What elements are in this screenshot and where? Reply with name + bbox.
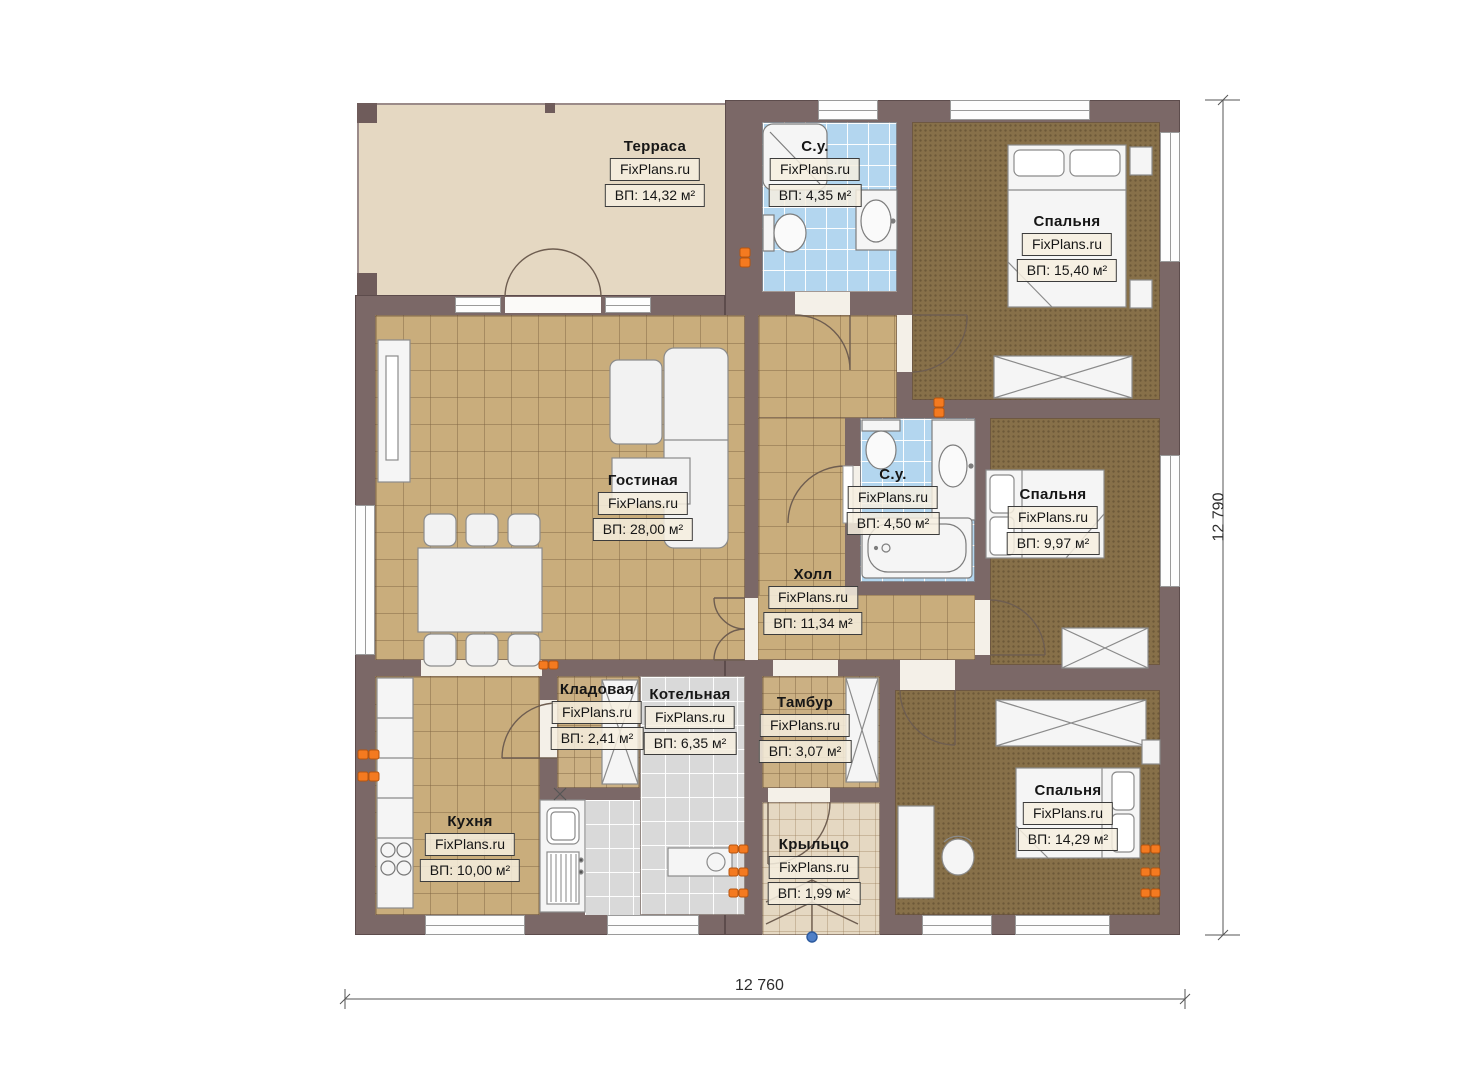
window-boiler	[607, 915, 699, 935]
vestibule-floor	[762, 676, 880, 788]
bathroom-mid-floor	[860, 418, 975, 582]
living-kitchen-opening	[421, 660, 542, 676]
dimension-tick	[1218, 930, 1228, 940]
window-bedroom-top-right	[1160, 132, 1180, 262]
window-kitchen	[425, 915, 525, 935]
window-bedroom-mid	[1160, 455, 1180, 587]
vestibule-hall-opening	[773, 660, 838, 676]
dimension-tick	[340, 994, 350, 1004]
terrace-corner-post	[357, 103, 377, 123]
window-bedroom-bottom-2	[1015, 915, 1110, 935]
terrace-mid-post	[545, 103, 555, 113]
bedroom-bottom-floor	[895, 690, 1160, 915]
bedroom-mid-door-opening	[975, 600, 990, 655]
dimension-tick	[1180, 994, 1190, 1004]
bathroom-top-door-opening	[795, 292, 850, 315]
pantry-door-opening	[540, 700, 557, 758]
terrace-door-opening	[505, 297, 601, 313]
window-living	[355, 505, 375, 655]
pantry-floor	[557, 676, 640, 788]
living-room-floor	[375, 315, 745, 660]
hall-floor-strip	[758, 418, 845, 595]
bathroom-mid-door-opening	[845, 466, 860, 523]
bedroom-bottom-door-opening	[900, 660, 955, 690]
window-bath-top	[818, 100, 878, 120]
hall-floor-upper	[758, 315, 897, 418]
living-hall-opening	[745, 598, 758, 660]
window-bedroom-top	[950, 100, 1090, 120]
bathroom-top-floor	[762, 122, 897, 292]
window-bedroom-bottom-1	[922, 915, 992, 935]
bedroom-top-door-opening	[897, 315, 912, 372]
hall-floor-lower	[758, 595, 975, 660]
terrace-floor	[357, 103, 725, 295]
dimension-height: 12 790	[1210, 493, 1228, 542]
floor-plan: Терраса FixPlans.ru ВП: 14,32 м² С.у. Fi…	[0, 0, 1474, 1080]
kitchen-floor	[375, 676, 540, 915]
terrace-sidelight-left	[455, 297, 501, 313]
vestibule-entry-opening	[768, 788, 830, 802]
dimension-width: 12 760	[735, 977, 784, 995]
boiler-floor	[640, 676, 745, 915]
bedroom-mid-floor	[990, 418, 1160, 665]
dimension-tick	[1218, 95, 1228, 105]
boiler-floor-ext	[585, 800, 640, 915]
terrace-sidelight-right	[605, 297, 651, 313]
porch-floor	[762, 802, 880, 935]
terrace-bottom-post	[357, 273, 377, 295]
bedroom-top-floor	[912, 122, 1160, 400]
